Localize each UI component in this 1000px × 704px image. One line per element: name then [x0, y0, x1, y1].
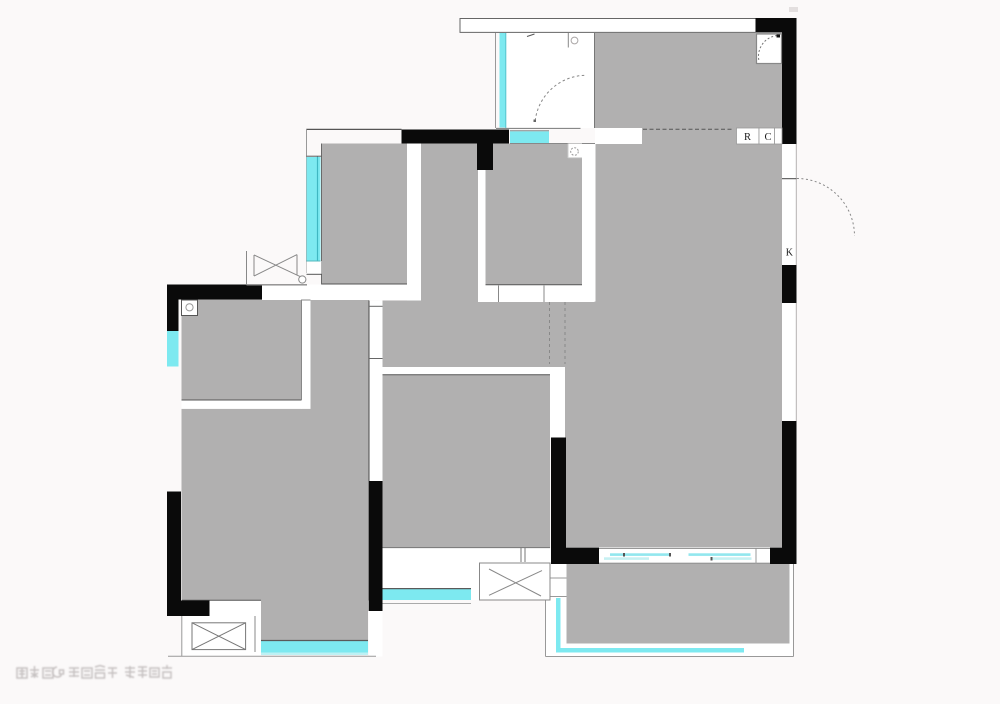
svg-text:R: R: [744, 132, 751, 143]
svg-text:C: C: [765, 132, 772, 143]
svg-text:K: K: [786, 248, 794, 259]
